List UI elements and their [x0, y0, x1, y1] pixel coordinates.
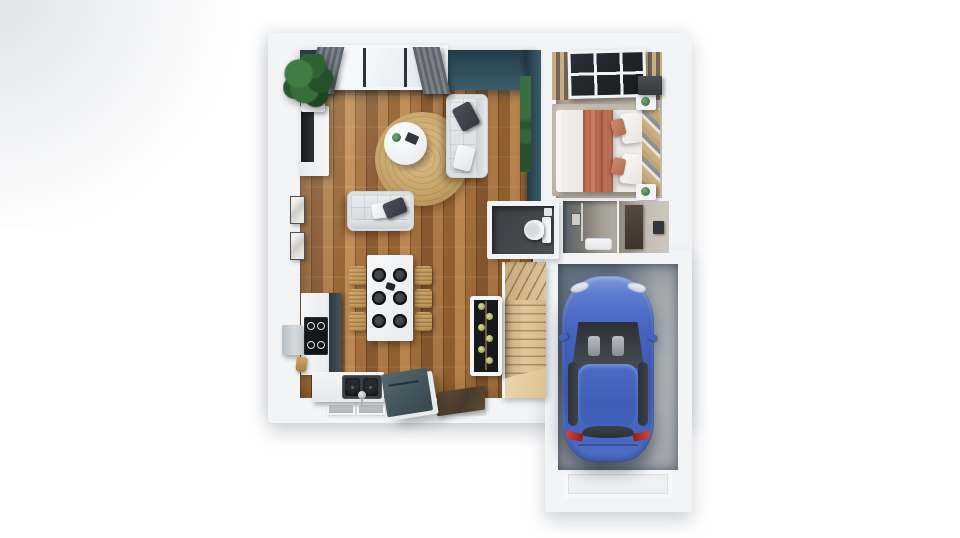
wine-bottle-icon	[486, 313, 493, 320]
car-seat	[612, 336, 624, 356]
dinner-plate	[372, 268, 386, 282]
sofa-pillow-dark	[382, 196, 408, 219]
induction-cooktop	[304, 317, 328, 355]
table-centerpiece	[385, 282, 396, 291]
dining-chair	[415, 312, 432, 331]
bottom-wall-window	[327, 403, 355, 415]
table-tray	[405, 132, 420, 145]
burner-icon	[317, 341, 325, 349]
sofa-pillow-white	[452, 144, 475, 172]
bathroom	[563, 201, 617, 253]
car-side-window	[638, 362, 648, 426]
plant-icon	[641, 187, 650, 196]
wardrobe	[638, 76, 662, 95]
wall-art-frame	[290, 232, 305, 260]
car-seat	[588, 336, 600, 356]
sofa-large	[446, 94, 488, 178]
burner-icon	[317, 322, 325, 330]
interior-door	[625, 205, 643, 249]
bedroom-floor	[556, 52, 662, 198]
staircase	[502, 262, 546, 398]
shower-tray	[585, 238, 612, 250]
teal-partition-wall	[527, 50, 541, 210]
wc-shelf	[544, 208, 552, 216]
table-plant-icon	[392, 133, 401, 142]
wine-bottle-icon	[478, 303, 485, 310]
wine-bottle-icon	[478, 324, 485, 331]
dining-table	[367, 255, 413, 341]
tv-sideboard	[299, 106, 329, 176]
wine-bottle-icon	[486, 335, 493, 342]
nightstand	[636, 184, 656, 200]
dinner-plate	[393, 314, 407, 328]
range-hood-vent	[282, 325, 303, 355]
floor-plan-scene	[0, 0, 960, 538]
faucet	[358, 391, 366, 399]
plant-icon	[641, 97, 650, 106]
double-bed	[556, 110, 644, 192]
wc-room	[487, 201, 559, 259]
dinner-plate	[372, 291, 386, 305]
dining-chair	[415, 266, 432, 285]
sofa-pillow-dark	[451, 101, 480, 132]
slate-tall-cabinet	[329, 293, 341, 375]
wall-art-frame	[290, 196, 305, 224]
wine-bottle-icon	[486, 357, 493, 364]
wall-thermostat	[653, 221, 664, 234]
blue-car	[562, 276, 654, 462]
sink-counter	[312, 372, 384, 402]
corner-plant	[283, 54, 335, 110]
garage-door	[564, 470, 672, 498]
car-roof	[578, 364, 638, 428]
dining-chair	[349, 312, 366, 331]
shower-glass-screen	[581, 203, 583, 241]
burner-icon	[307, 322, 315, 330]
hanging-cutting-board	[295, 356, 308, 372]
skylight-window	[567, 49, 646, 99]
slat-headboard-panel	[642, 108, 660, 196]
ceiling-beams	[552, 52, 568, 100]
tv-screen	[301, 110, 314, 162]
dining-chair	[415, 289, 432, 308]
wine-cooler	[470, 296, 502, 376]
burner-icon	[307, 341, 315, 349]
terracotta-throw	[583, 110, 613, 192]
nightstand	[636, 94, 656, 110]
sofa-small	[347, 191, 414, 231]
dinner-plate	[372, 314, 386, 328]
kitchen-island	[381, 368, 433, 418]
toilet-bowl	[524, 220, 544, 240]
hallway	[619, 201, 669, 253]
dining-chair	[349, 266, 366, 285]
wine-bottle-icon	[478, 346, 485, 353]
car-windshield	[572, 322, 644, 368]
wall-art-frame	[571, 213, 581, 226]
coffee-table	[384, 122, 427, 165]
car-rear-window	[582, 426, 634, 438]
dining-chair	[349, 289, 366, 308]
dinner-plate	[393, 268, 407, 282]
car-side-window	[568, 362, 578, 426]
dinner-plate	[393, 291, 407, 305]
